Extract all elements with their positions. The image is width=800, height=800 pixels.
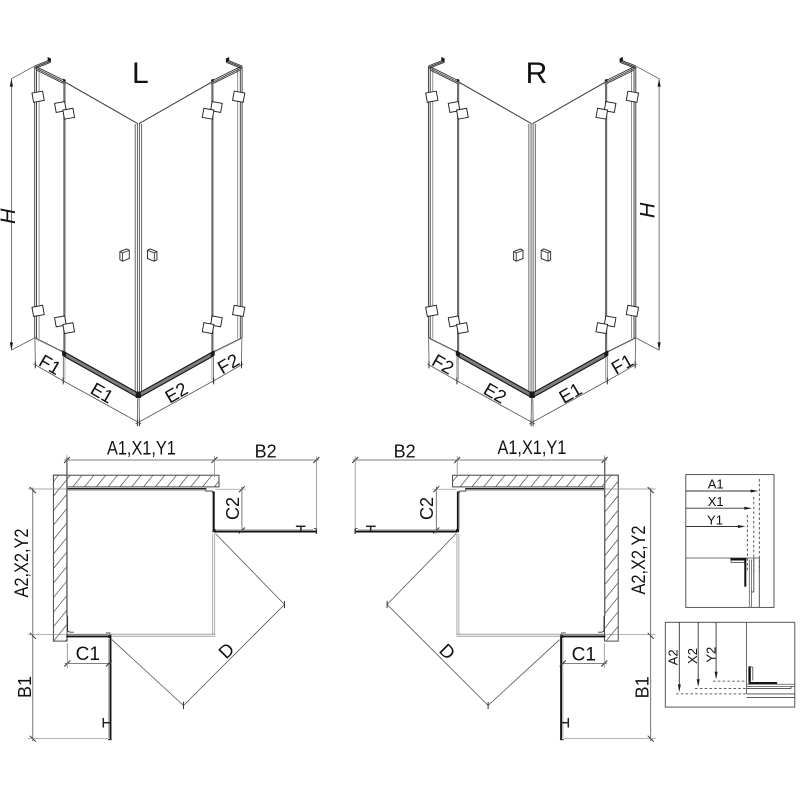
svg-text:X1: X1 <box>708 494 724 509</box>
svg-text:A1: A1 <box>708 476 724 491</box>
svg-text:B2: B2 <box>394 442 416 462</box>
svg-text:C2: C2 <box>223 497 243 520</box>
svg-text:B2: B2 <box>255 442 277 462</box>
svg-text:R: R <box>526 57 548 90</box>
svg-text:C1: C1 <box>76 644 100 665</box>
svg-text:B1: B1 <box>15 676 35 698</box>
svg-text:X2: X2 <box>685 648 700 664</box>
svg-text:B1: B1 <box>633 676 653 698</box>
svg-text:A2,X2,Y2: A2,X2,Y2 <box>629 526 650 595</box>
svg-text:Y1: Y1 <box>707 512 723 527</box>
svg-text:C2: C2 <box>417 497 437 520</box>
svg-text:H: H <box>635 202 659 218</box>
svg-text:A1,X1,Y1: A1,X1,Y1 <box>107 439 176 460</box>
svg-text:A2,X2,Y2: A2,X2,Y2 <box>12 529 33 598</box>
svg-text:A1,X1,Y1: A1,X1,Y1 <box>498 438 567 459</box>
svg-text:L: L <box>132 57 149 90</box>
svg-text:H: H <box>0 208 20 224</box>
svg-text:C1: C1 <box>572 645 596 666</box>
svg-text:Y2: Y2 <box>704 647 719 663</box>
svg-text:A2: A2 <box>666 649 681 665</box>
